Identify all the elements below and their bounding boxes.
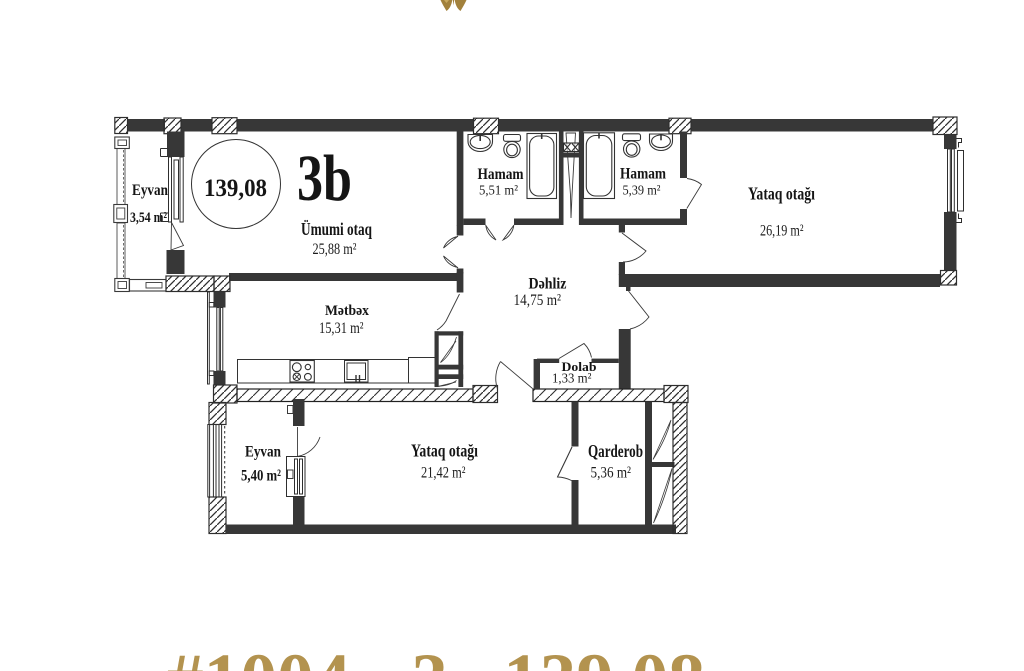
- svg-text:15,31 m²: 15,31 m²: [319, 320, 364, 337]
- svg-text:Eyvan: Eyvan: [132, 182, 168, 199]
- svg-text:Qarderob: Qarderob: [588, 441, 643, 461]
- svg-text:139,08: 139,08: [204, 175, 267, 202]
- svg-text:25,88 m²: 25,88 m²: [313, 241, 357, 258]
- svg-text:3b: 3b: [297, 142, 352, 215]
- svg-text:Yataq otağı: Yataq otağı: [411, 441, 478, 461]
- svg-text:5,51 m²: 5,51 m²: [479, 184, 518, 199]
- svg-text:Hamam: Hamam: [478, 166, 525, 183]
- svg-text:14,75 m²: 14,75 m²: [514, 292, 562, 309]
- svg-text:Ümumi otaq: Ümumi otaq: [301, 219, 372, 239]
- svg-text:5,36 m²: 5,36 m²: [591, 465, 632, 482]
- svg-text:3,54 m²: 3,54 m²: [130, 210, 167, 226]
- svg-text:Dəhliz: Dəhliz: [529, 276, 567, 293]
- svg-text:Yataq otağı: Yataq otağı: [748, 184, 815, 204]
- svg-text:26,19 m²: 26,19 m²: [760, 223, 804, 240]
- svg-text:Eyvan: Eyvan: [245, 444, 281, 461]
- svg-text:Hamam: Hamam: [620, 166, 667, 183]
- svg-text:5,40 m²: 5,40 m²: [241, 468, 281, 485]
- svg-text:5,39 m²: 5,39 m²: [623, 184, 661, 199]
- svg-text:Mətbəx: Mətbəx: [325, 303, 369, 319]
- svg-text:#1004 - 3 139,08: #1004 - 3 139,08: [167, 639, 705, 671]
- svg-text:1,33 m²: 1,33 m²: [552, 372, 592, 387]
- svg-text:21,42 m²: 21,42 m²: [421, 465, 466, 482]
